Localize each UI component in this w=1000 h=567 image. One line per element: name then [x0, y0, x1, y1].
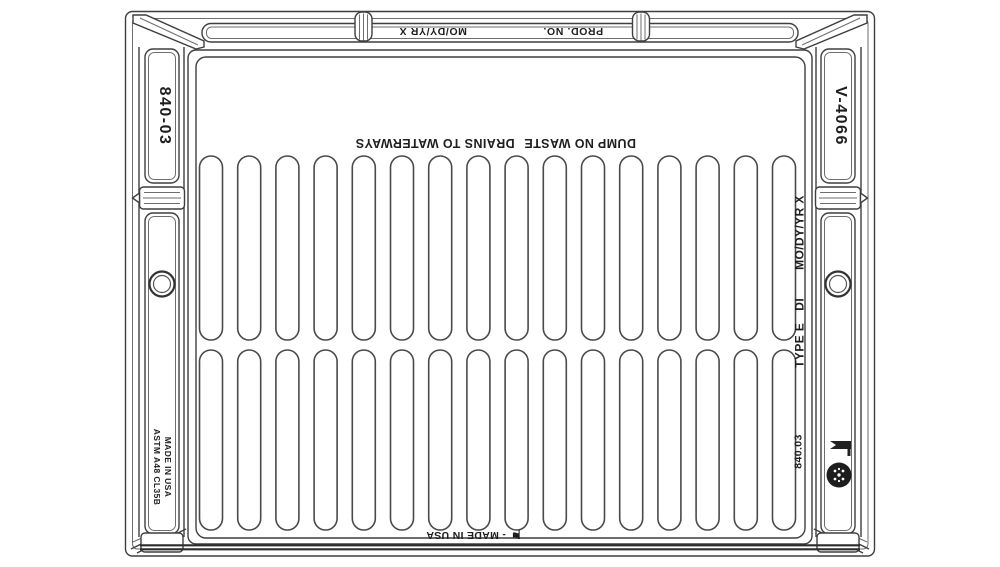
- grate-material-label: DI: [794, 298, 807, 311]
- drain-slot: [429, 156, 452, 340]
- casting-drawing: PROD. NO. MO/DY/YR X DUMP NO WASTE DRAIN…: [0, 0, 1000, 567]
- origin-made-in-usa: MADE IN USA: [163, 403, 174, 531]
- origin-astm-spec: ASTM A48 CL35B: [152, 403, 163, 531]
- drain-slot: [620, 156, 643, 340]
- drain-slot: [543, 156, 566, 340]
- grate-date-stamp-label: MO/DY/YR X: [794, 195, 807, 270]
- drain-slot: [620, 350, 643, 530]
- grate-type-row: TYPE E DI MO/DY/YR X: [793, 191, 808, 373]
- drain-slot: [505, 156, 528, 340]
- drain-slot: [276, 156, 299, 340]
- drain-slot: [734, 350, 757, 530]
- drain-slot: [696, 156, 719, 340]
- right-rail-model-number: V-4066: [828, 61, 848, 171]
- grate-catalog-number: 840.03: [794, 422, 807, 482]
- grate-type-label: TYPE E: [794, 323, 807, 368]
- drain-slot: [200, 350, 223, 530]
- drain-slot: [352, 156, 375, 340]
- drawing-linework: [0, 0, 1000, 567]
- foundry-logo-icon: [827, 463, 852, 488]
- grate-slots: [200, 156, 796, 530]
- bottom-origin-row: ⚑ - MADE IN USA: [404, 527, 544, 541]
- drain-slot: [696, 350, 719, 530]
- drain-slot: [658, 156, 681, 340]
- drain-slot: [734, 156, 757, 340]
- flag-glyph-icon: ⚑: [511, 528, 522, 541]
- left-rail-origin-spec: MADE IN USA ASTM A48 CL35B: [151, 403, 173, 531]
- drain-slot: [429, 350, 452, 530]
- bottom-seat-lines: [140, 545, 860, 549]
- warning-dump-no-waste: DUMP NO WASTE: [515, 136, 645, 149]
- drain-slot: [314, 350, 337, 530]
- drain-slot: [352, 350, 375, 530]
- top-date-stamp-label: MO/DY/YR X: [383, 25, 483, 36]
- drain-slot: [582, 350, 605, 530]
- drain-slot: [314, 156, 337, 340]
- drain-slot: [658, 350, 681, 530]
- top-rail: [202, 24, 798, 43]
- left-rail-boss-circle: [150, 272, 175, 297]
- drain-slot: [276, 350, 299, 530]
- drain-slot: [543, 350, 566, 530]
- bottom-origin-label: - MADE IN USA: [426, 529, 506, 540]
- drain-slot: [391, 156, 414, 340]
- right-rail-joint: [816, 187, 868, 209]
- right-rail-boss-circle: [826, 272, 851, 297]
- top-lug-right: [633, 12, 650, 41]
- warning-drains-to-waterways: DRAINS TO WATERWAYS: [345, 136, 525, 149]
- drain-slot: [238, 350, 261, 530]
- prod-no-label: PROD. NO.: [533, 25, 613, 36]
- drain-slot: [505, 350, 528, 530]
- corner-miter-top-left: [133, 15, 204, 49]
- top-lug-left: [355, 12, 372, 41]
- corner-miter-top-right: [796, 15, 867, 49]
- drain-slot: [467, 350, 490, 530]
- drain-slot: [200, 156, 223, 340]
- drain-slot: [467, 156, 490, 340]
- drain-slot: [391, 350, 414, 530]
- drain-slot: [582, 156, 605, 340]
- left-rail-joint: [133, 187, 185, 209]
- drain-slot: [238, 156, 261, 340]
- left-rail-model-number: 840-03: [152, 61, 172, 171]
